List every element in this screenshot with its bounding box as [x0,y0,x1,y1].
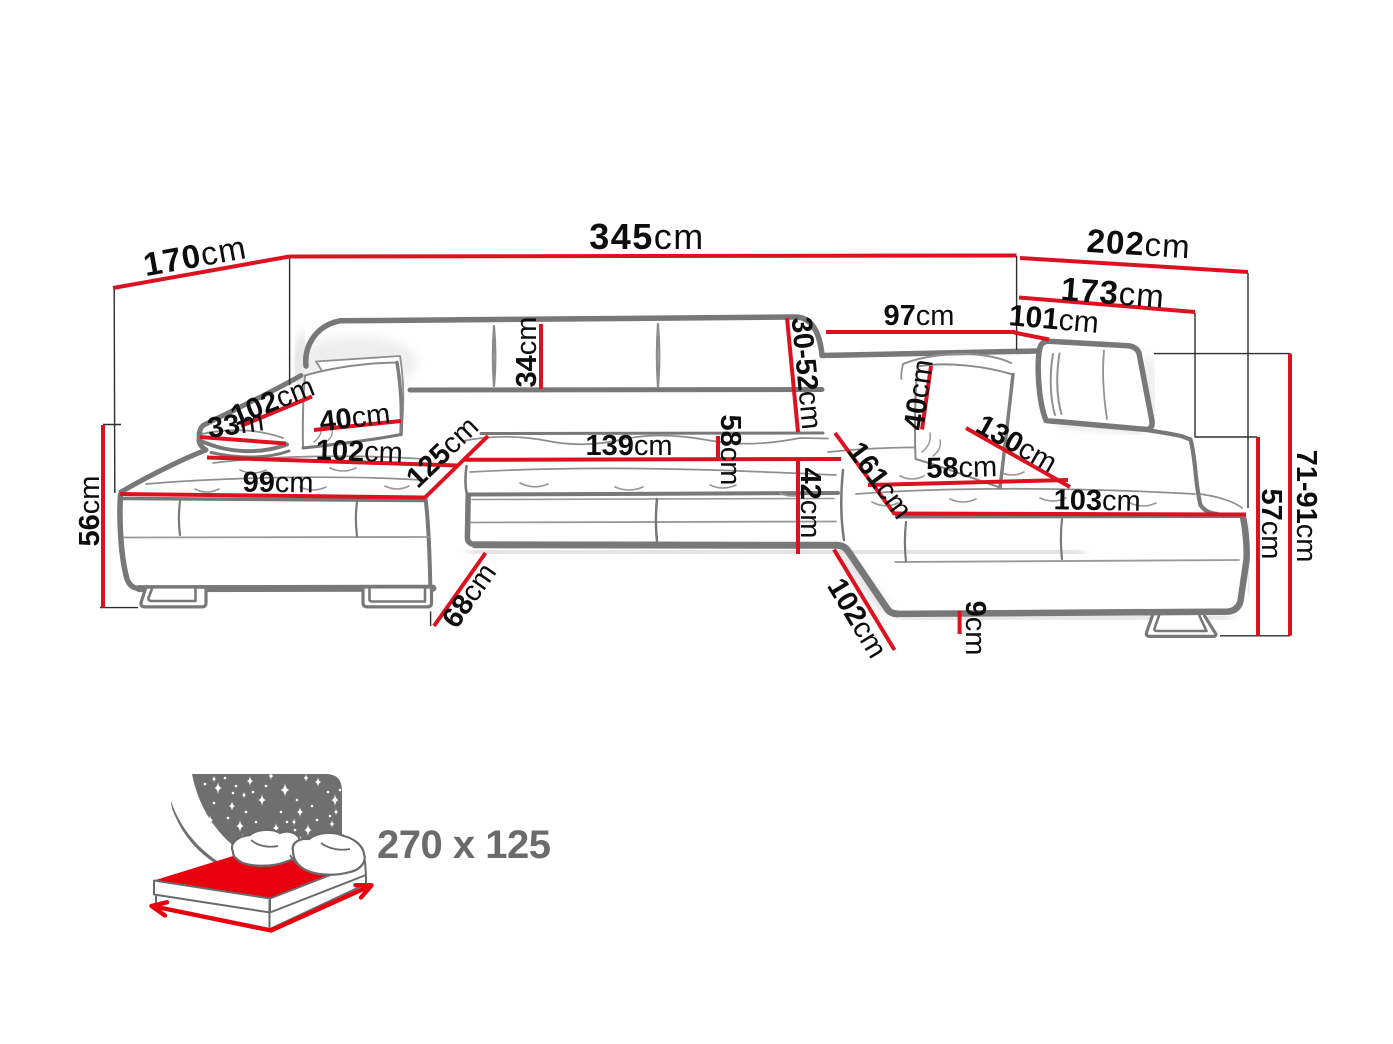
svg-text:161cm: 161cm [841,436,918,525]
svg-text:71-91cm: 71-91cm [1290,450,1322,563]
svg-text:103cm: 103cm [1053,484,1141,518]
svg-text:270 x 125: 270 x 125 [377,823,551,867]
svg-text:58cm: 58cm [714,415,746,486]
svg-text:97cm: 97cm [884,300,955,332]
svg-text:345cm: 345cm [589,216,705,257]
svg-text:68cm: 68cm [436,558,503,634]
svg-text:139cm: 139cm [585,430,672,462]
svg-text:202cm: 202cm [1086,222,1192,265]
svg-text:99cm: 99cm [242,467,313,500]
svg-text:57cm: 57cm [1255,489,1287,560]
svg-text:30-52cm: 30-52cm [785,315,828,430]
svg-text:102cm: 102cm [821,573,893,664]
svg-text:102cm: 102cm [315,434,403,469]
svg-text:34cm: 34cm [511,317,543,388]
svg-text:56cm: 56cm [74,476,106,547]
svg-text:58cm: 58cm [926,451,998,485]
svg-text:9cm: 9cm [959,601,991,656]
svg-text:33m: 33m [206,405,266,445]
svg-text:42cm: 42cm [794,468,826,539]
